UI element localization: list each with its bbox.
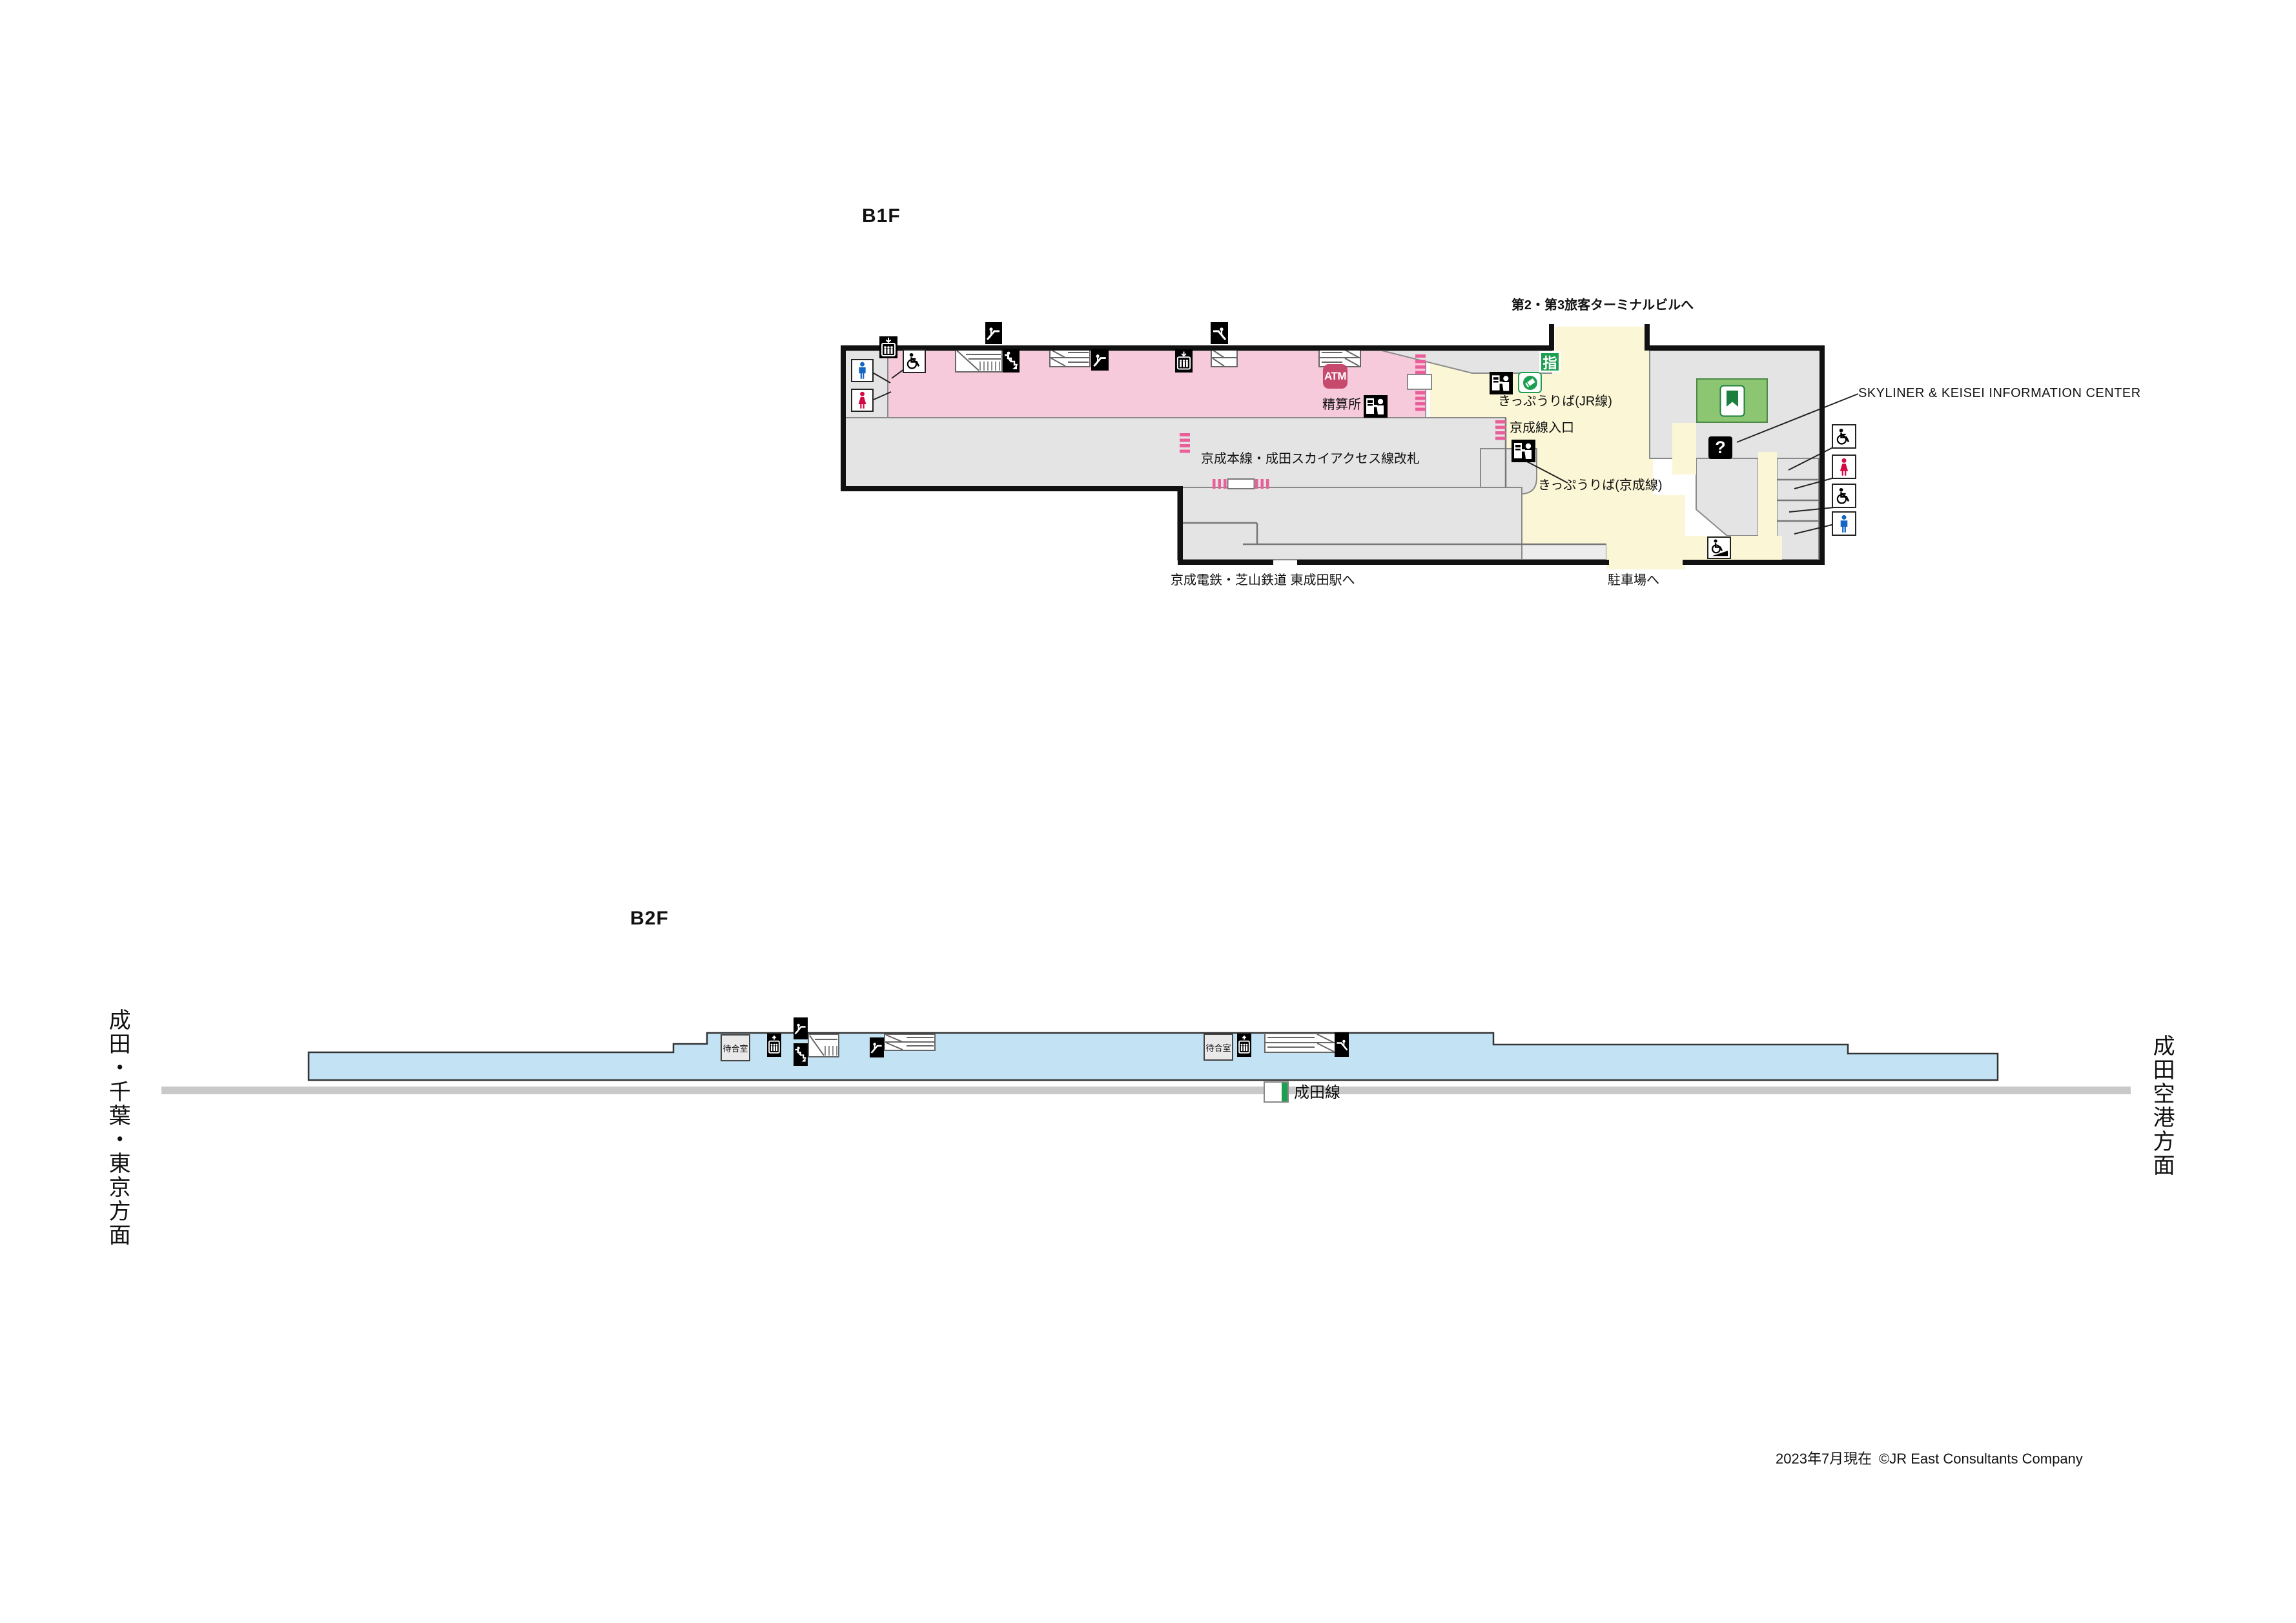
direction-left-label: 成田・千葉・東京方面 bbox=[105, 1008, 130, 1247]
mens-toilet-icon bbox=[1832, 511, 1856, 536]
wheelchair-ramp-icon bbox=[1707, 536, 1731, 559]
information-icon: ? bbox=[1708, 436, 1732, 459]
atm-badge: ATM bbox=[1323, 364, 1348, 389]
wheelchair-icon bbox=[903, 349, 926, 373]
elevator-icon bbox=[879, 336, 897, 358]
wheelchair-icon bbox=[1832, 424, 1856, 449]
wheelchair-icon bbox=[1832, 484, 1856, 508]
copyright: ©JR East Consultants Company bbox=[1879, 1451, 2083, 1467]
keisei-ticket-office-label: きっぷうりば(京成線) bbox=[1538, 478, 1663, 493]
b2f-floor-label: B2F bbox=[630, 908, 669, 930]
mens-toilet-icon bbox=[851, 359, 874, 382]
b2f-platform bbox=[309, 1033, 1998, 1080]
reserved-ticket-machine-icon bbox=[1518, 372, 1542, 393]
escalator-icon bbox=[794, 1017, 808, 1039]
b1f-machine-room-notch bbox=[1408, 374, 1431, 389]
terminal-link-label: 第2・第3旅客ターミナルビルへ bbox=[1512, 298, 1694, 313]
fare-adjustment-label: 精算所 bbox=[1322, 398, 1361, 413]
elevator-icon bbox=[1175, 349, 1193, 373]
escalator-icon bbox=[1211, 322, 1228, 344]
womens-toilet-icon bbox=[851, 389, 874, 412]
escalator-icon bbox=[1335, 1032, 1349, 1057]
narita-line-symbol bbox=[1264, 1081, 1289, 1103]
direction-right-label: 成田空港方面 bbox=[2149, 1034, 2174, 1178]
b1f-floor-label: B1F bbox=[862, 205, 901, 228]
elevator-icon bbox=[767, 1034, 781, 1057]
higashi-narita-link-label: 京成電鉄・芝山鉄道 東成田駅へ bbox=[1171, 573, 1355, 588]
stairs-down-icon bbox=[1003, 349, 1020, 373]
b2f-track bbox=[161, 1087, 2131, 1094]
womens-toilet-icon bbox=[1832, 454, 1856, 479]
keisei-gates-label: 京成本線・成田スカイアクセス線改札 bbox=[1201, 452, 1420, 467]
stairs-down-icon bbox=[794, 1043, 808, 1066]
parking-link-label: 駐車場へ bbox=[1608, 573, 1659, 588]
ticket-machine-icon bbox=[1512, 440, 1535, 462]
travel-service-center-icon bbox=[1696, 378, 1768, 423]
ticket-machine-icon bbox=[1364, 395, 1388, 418]
keisei-entrance-label: 京成線入口 bbox=[1510, 421, 1574, 436]
jr-ticket-office-label: きっぷうりば(JR線) bbox=[1498, 394, 1612, 409]
info-center-label: SKYLINER & KEISEI INFORMATION CENTER bbox=[1858, 386, 2141, 401]
waiting-room-1: 待合室 bbox=[721, 1034, 750, 1061]
elevator-icon bbox=[1237, 1034, 1251, 1057]
escalator-icon bbox=[985, 322, 1002, 344]
reserved-seat-badge: 指 bbox=[1539, 351, 1561, 373]
ticket-machine-icon bbox=[1490, 372, 1513, 394]
narita-line-badge: 成田線 bbox=[1294, 1084, 1340, 1102]
escalator-icon bbox=[870, 1037, 884, 1057]
floor-plan-drawing bbox=[0, 0, 2296, 1623]
escalator-icon bbox=[1091, 349, 1109, 371]
station-map-page: B1F 第2・第3旅客ターミナルビルへ 精算所 きっぷうりば(JR線) 京成線入… bbox=[0, 0, 2296, 1623]
waiting-room-2: 待合室 bbox=[1204, 1034, 1233, 1061]
map-date: 2023年7月現在 bbox=[1776, 1451, 1872, 1467]
